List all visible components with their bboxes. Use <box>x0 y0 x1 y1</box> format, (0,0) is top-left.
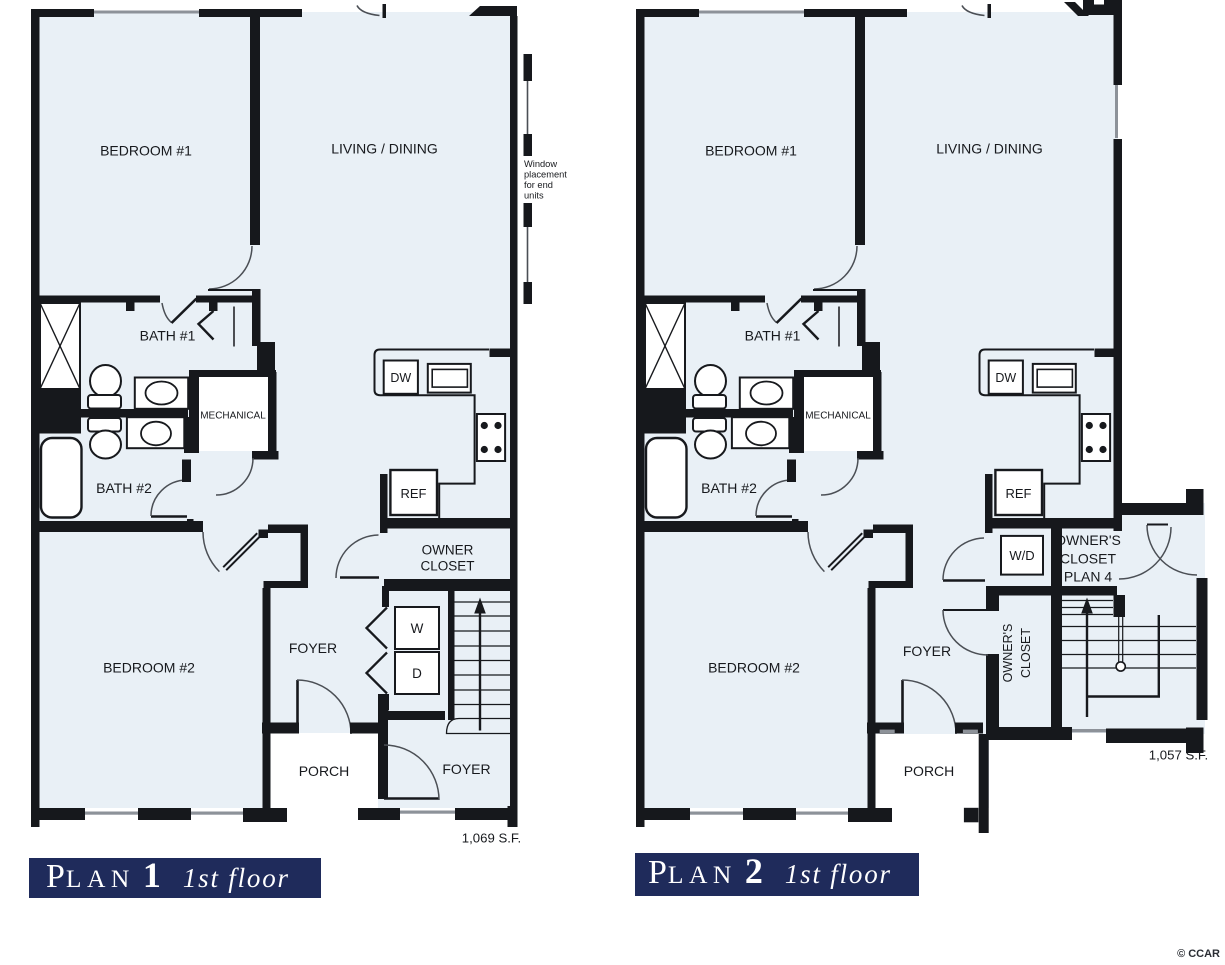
svg-text:BEDROOM #1: BEDROOM #1 <box>705 143 797 159</box>
svg-text:W: W <box>411 621 424 636</box>
svg-text:FOYER: FOYER <box>442 761 490 777</box>
svg-text:MECHANICAL: MECHANICAL <box>200 411 266 422</box>
svg-text:PORCH: PORCH <box>299 763 350 779</box>
svg-text:BATH #2: BATH #2 <box>701 480 757 496</box>
svg-text:© CCAR: © CCAR <box>1177 948 1220 960</box>
svg-text:W/D: W/D <box>1009 548 1034 563</box>
svg-text:DW: DW <box>390 371 411 385</box>
svg-text:CLOSET: CLOSET <box>1060 551 1116 567</box>
svg-text:CLOSET: CLOSET <box>420 559 474 574</box>
svg-text:CLOSET: CLOSET <box>1019 628 1033 678</box>
svg-text:REF: REF <box>401 486 427 501</box>
svg-text:BATH #1: BATH #1 <box>140 328 196 344</box>
svg-text:PORCH: PORCH <box>904 763 955 779</box>
svg-text:LIVING / DINING: LIVING / DINING <box>936 141 1043 157</box>
svg-text:BATH #2: BATH #2 <box>96 480 152 496</box>
svg-text:1,057 S.F.: 1,057 S.F. <box>1149 748 1208 763</box>
svg-text:DW: DW <box>995 371 1016 385</box>
svg-text:OWNER: OWNER <box>422 543 474 558</box>
svg-text:FOYER: FOYER <box>289 640 337 656</box>
svg-text:BEDROOM #2: BEDROOM #2 <box>103 660 195 676</box>
svg-text:OWNER'S: OWNER'S <box>1001 624 1015 683</box>
svg-text:LIVING / DINING: LIVING / DINING <box>331 141 438 157</box>
svg-text:D: D <box>412 666 422 681</box>
svg-text:REF: REF <box>1006 486 1032 501</box>
svg-text:BEDROOM #2: BEDROOM #2 <box>708 660 800 676</box>
svg-text:Window: Window <box>524 159 557 169</box>
svg-text:units: units <box>524 191 544 201</box>
svg-text:placement: placement <box>524 170 567 180</box>
svg-text:OWNER'S: OWNER'S <box>1055 532 1121 548</box>
svg-text:for end: for end <box>524 180 553 190</box>
svg-text:BEDROOM #1: BEDROOM #1 <box>100 143 192 159</box>
svg-text:1,069 S.F.: 1,069 S.F. <box>462 831 521 846</box>
svg-text:PLAN 4: PLAN 4 <box>1064 569 1112 585</box>
svg-text:MECHANICAL: MECHANICAL <box>805 411 871 422</box>
svg-text:FOYER: FOYER <box>903 643 951 659</box>
svg-text:BATH #1: BATH #1 <box>745 328 801 344</box>
